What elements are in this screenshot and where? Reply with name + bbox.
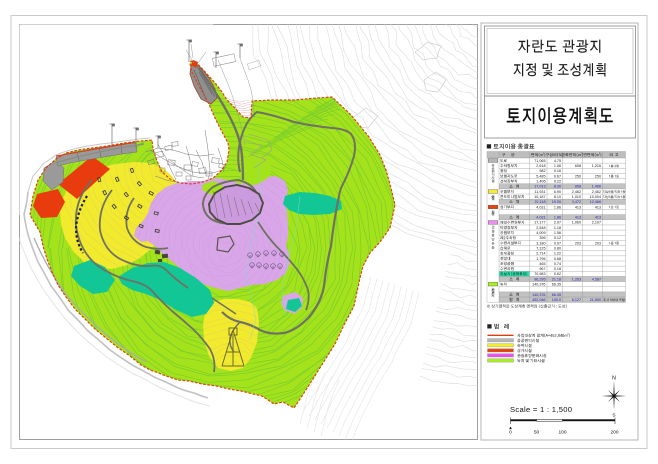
svg-text:2,618: 2,618 (536, 164, 545, 168)
svg-text:0.68: 0.68 (554, 257, 561, 261)
svg-text:15.00: 15.00 (552, 200, 561, 204)
svg-text:2,462: 2,462 (592, 190, 601, 194)
svg-text:2,107: 2,107 (592, 221, 601, 225)
svg-text:0.22: 0.22 (554, 180, 561, 184)
svg-text:967: 967 (539, 267, 545, 271)
svg-text:203: 203 (575, 241, 581, 245)
svg-text:10,187: 10,187 (534, 195, 545, 199)
svg-text:0.18: 0.18 (554, 267, 561, 271)
svg-text:4,009: 4,009 (536, 231, 545, 235)
svg-text:1,010: 1,010 (572, 195, 581, 199)
svg-text:140,376: 140,376 (532, 283, 545, 287)
svg-text:5,485: 5,485 (536, 174, 545, 178)
svg-text:66.35: 66.35 (552, 293, 561, 297)
svg-text:1,263: 1,263 (572, 277, 581, 281)
svg-text:8.30: 8.30 (554, 185, 561, 189)
svg-text:1,060: 1,060 (572, 221, 581, 225)
svg-text:17,177: 17,177 (534, 221, 545, 225)
svg-text:3,180: 3,180 (536, 241, 545, 245)
svg-text:465: 465 (539, 262, 545, 266)
svg-text:4,031: 4,031 (536, 216, 545, 220)
svg-text:4,587: 4,587 (592, 277, 601, 281)
svg-text:1,406: 1,406 (536, 180, 545, 184)
svg-text:0: 0 (509, 430, 512, 436)
svg-text:66.35: 66.35 (552, 283, 561, 287)
svg-text:17,013: 17,013 (534, 185, 545, 189)
svg-text:3,472: 3,472 (572, 200, 581, 204)
svg-text:50: 50 (534, 430, 540, 436)
svg-text:140,376: 140,376 (532, 293, 545, 297)
svg-text:21.18: 21.18 (552, 277, 561, 281)
svg-text:1,466: 1,466 (592, 185, 601, 189)
svg-text:N: N (612, 376, 616, 382)
svg-text:982: 982 (539, 169, 545, 173)
svg-text:4,031: 4,031 (536, 205, 545, 209)
svg-text:0.62: 0.62 (554, 272, 561, 276)
svg-text:2.97: 2.97 (554, 221, 561, 225)
svg-text:4.75: 4.75 (554, 159, 561, 163)
svg-text:1,796: 1,796 (536, 257, 545, 261)
svg-text:0.67: 0.67 (554, 174, 561, 178)
svg-text:70,983: 70,983 (534, 272, 545, 276)
svg-text:2,714: 2,714 (536, 252, 545, 256)
svg-text:2,462: 2,462 (572, 190, 581, 194)
svg-text:1.18: 1.18 (554, 226, 561, 230)
svg-text:413: 413 (595, 216, 601, 220)
svg-text:6.90: 6.90 (554, 190, 561, 194)
svg-text:0.97: 0.97 (554, 241, 561, 245)
svg-text:413: 413 (575, 205, 581, 209)
svg-text:1.06: 1.06 (554, 164, 561, 168)
svg-text:21,500: 21,500 (590, 298, 601, 302)
svg-text:200: 200 (610, 430, 618, 436)
svg-text:858: 858 (575, 185, 581, 189)
svg-text:1.56: 1.56 (554, 231, 561, 235)
svg-text:1.86: 1.86 (554, 216, 561, 220)
svg-text:96,295: 96,295 (534, 277, 545, 281)
svg-text:1.22: 1.22 (554, 252, 561, 256)
svg-text:22,118: 22,118 (534, 200, 545, 204)
svg-text:100.0: 100.0 (552, 298, 561, 302)
svg-text:8.10: 8.10 (554, 195, 561, 199)
svg-text:0.74: 0.74 (554, 262, 561, 266)
svg-text:203: 203 (595, 241, 601, 245)
svg-text:608: 608 (575, 164, 581, 168)
svg-text:413: 413 (575, 216, 581, 220)
svg-text:1.86: 1.86 (554, 205, 561, 209)
svg-text:Scale = 1 : 1,500: Scale = 1 : 1,500 (510, 405, 572, 414)
svg-text:6,127: 6,127 (572, 298, 581, 302)
svg-text:0.80: 0.80 (554, 246, 561, 250)
svg-text:2,548: 2,548 (536, 226, 545, 230)
svg-text:0.12: 0.12 (554, 236, 561, 240)
svg-text:100: 100 (558, 430, 566, 436)
svg-text:0.16: 0.16 (554, 169, 561, 173)
svg-text:12,466: 12,466 (590, 200, 601, 204)
svg-text:396: 396 (539, 236, 545, 240)
svg-text:452,046: 452,046 (532, 298, 545, 302)
svg-text:10,004: 10,004 (590, 195, 601, 199)
svg-text:71,065: 71,065 (534, 159, 545, 163)
svg-text:250: 250 (575, 174, 581, 178)
svg-text:413: 413 (595, 205, 601, 209)
svg-text:7,125: 7,125 (536, 246, 545, 250)
svg-text:1,216: 1,216 (592, 164, 601, 168)
svg-text:250: 250 (595, 174, 601, 178)
svg-text:11,931: 11,931 (534, 190, 545, 194)
